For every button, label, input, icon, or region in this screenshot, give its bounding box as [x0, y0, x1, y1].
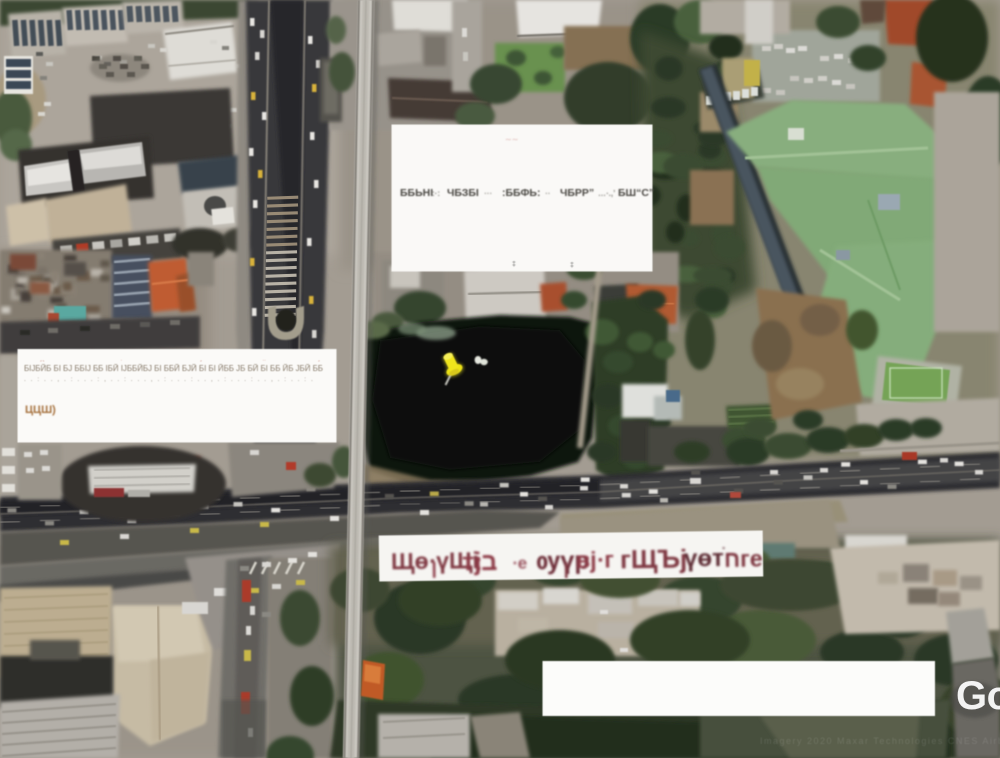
svg-text:ЧБРР”: ЧБРР”	[560, 187, 594, 199]
svg-text:‡: ‡	[570, 262, 574, 269]
svg-text:חге: חге	[724, 545, 763, 572]
svg-text:ЧБЗБІ: ЧБЗБІ	[447, 187, 479, 199]
svg-text:БШ“С”: БШ“С”	[618, 187, 654, 199]
svg-text:·е: ·е	[512, 554, 527, 573]
svg-text:…·.,’: …·.,’	[598, 189, 615, 198]
svg-text:···: ···	[484, 189, 492, 198]
svg-text:ББЬНІ: ББЬНІ	[400, 187, 433, 199]
svg-text:. . : . . , . : . . . : , . .: . . : . . , . : . . . : , . . : . . . , …	[24, 376, 314, 383]
svg-text:т׃јב: т׃јב	[462, 548, 498, 576]
svg-text:∼∼: ∼∼	[505, 135, 518, 144]
svg-text:гЩЪј: гЩЪј	[620, 543, 688, 574]
svg-text:··: ··	[545, 189, 550, 198]
svg-text:үөтׂ: үөтׂ	[684, 545, 725, 573]
svg-text:БІЈБЙБ БІ БЈ ББІЈ ББ ІБЙ ІЈББЙ: БІЈБЙБ БІ БЈ ББІЈ ББ ІБЙ ІЈББЙБЈ БІ ББЙ …	[24, 364, 324, 373]
svg-text:вј·г: вј·г	[576, 546, 614, 572]
svg-text::·:: :·:	[432, 189, 440, 198]
svg-text:Go: Go	[956, 674, 1000, 718]
svg-text:‡: ‡	[512, 261, 516, 268]
svg-text::ББФЬ:: :ББФЬ:	[502, 187, 540, 199]
svg-text:ЦЦШ): ЦЦШ)	[25, 404, 56, 416]
svg-text:Imagery 2020 Maxar Technologie: Imagery 2020 Maxar Technologies CNES Air…	[760, 736, 1000, 746]
